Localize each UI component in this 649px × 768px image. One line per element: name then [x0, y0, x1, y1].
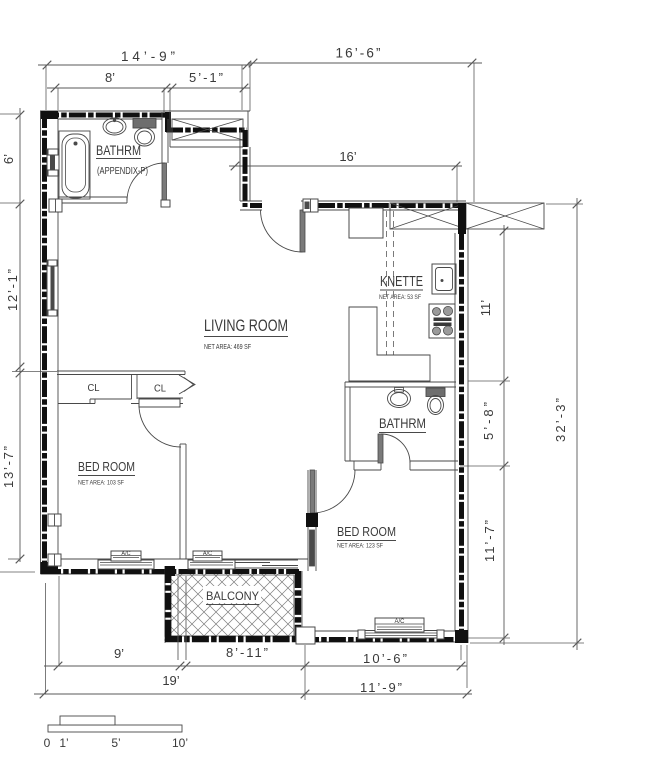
svg-text:A/C: A/C — [394, 619, 405, 625]
svg-text:NET AREA: 53 SF: NET AREA: 53 SF — [379, 294, 421, 301]
svg-text:CL: CL — [88, 382, 100, 394]
svg-text:LIVING ROOM: LIVING ROOM — [204, 316, 288, 335]
svg-text:6’: 6’ — [1, 154, 16, 164]
svg-text:BATHRM: BATHRM — [379, 416, 426, 431]
svg-text:KNETTE: KNETTE — [380, 273, 423, 290]
svg-text:NET AREA: 123 SF: NET AREA: 123 SF — [337, 543, 383, 550]
svg-text:BATHRM: BATHRM — [96, 143, 141, 158]
svg-text:8’: 8’ — [105, 70, 115, 85]
svg-text:10’: 10’ — [172, 736, 188, 750]
svg-text:BALCONY: BALCONY — [206, 589, 259, 603]
svg-text:0: 0 — [44, 736, 51, 750]
svg-text:BED ROOM: BED ROOM — [337, 525, 396, 539]
svg-text:A/C: A/C — [203, 551, 212, 557]
svg-text:NET AREA: 469 SF: NET AREA: 469 SF — [204, 344, 251, 351]
svg-text:BED ROOM: BED ROOM — [78, 460, 135, 474]
svg-text:19’: 19’ — [162, 673, 179, 688]
svg-text:9’: 9’ — [114, 646, 124, 661]
svg-text:5’: 5’ — [111, 736, 120, 750]
svg-text:NET AREA: 103 SF: NET AREA: 103 SF — [78, 480, 124, 487]
svg-text:11’: 11’ — [478, 300, 493, 316]
svg-text:16’: 16’ — [339, 149, 356, 164]
svg-text:8’-11”: 8’-11” — [226, 645, 268, 660]
svg-text:CL: CL — [154, 383, 166, 395]
svg-text:1’: 1’ — [59, 736, 68, 750]
svg-text:A/C: A/C — [121, 551, 130, 557]
svg-text:5’-1”: 5’-1” — [189, 70, 223, 85]
